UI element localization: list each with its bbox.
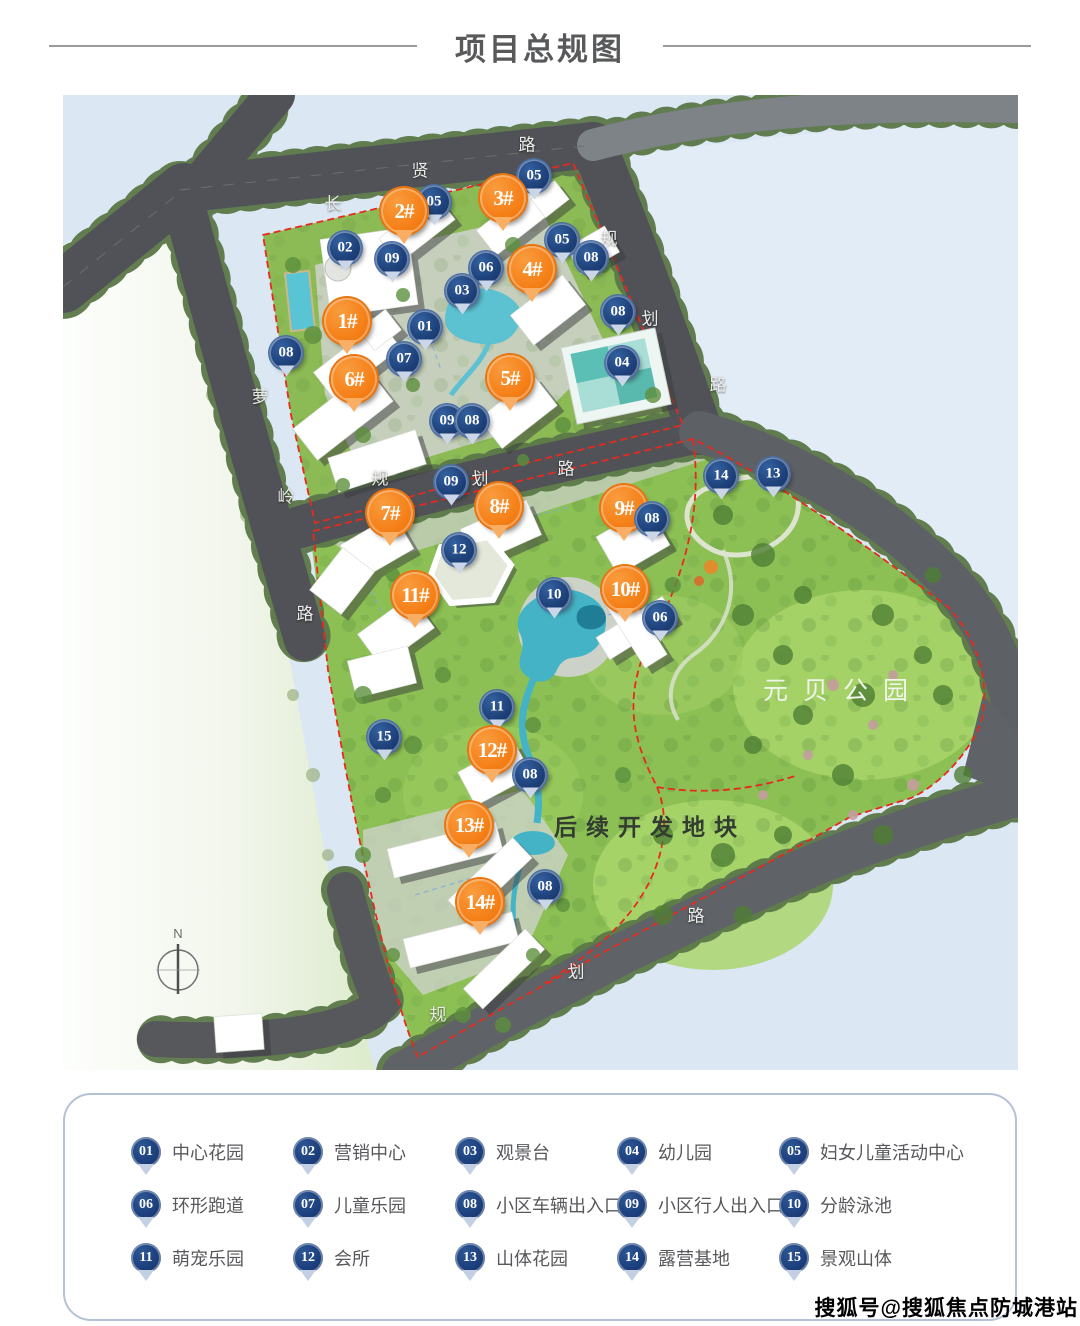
legend-item-04: 04幼儿园 bbox=[617, 1137, 779, 1167]
legend-item-12: 12会所 bbox=[293, 1243, 455, 1273]
legend-item-01: 01中心花园 bbox=[131, 1137, 293, 1167]
compass-n-label: N bbox=[173, 926, 182, 941]
legend-pin-10: 10 bbox=[779, 1190, 809, 1220]
site-plan-map: 1#2#3#4#5#6#7#8#9#10#11#12#13#14#0505020… bbox=[63, 95, 1018, 1070]
legend-item-02: 02营销中心 bbox=[293, 1137, 455, 1167]
title-bar: 项目总规图 bbox=[0, 18, 1080, 74]
building-pin-8#: 8# bbox=[476, 483, 522, 529]
amenity-pin-08: 08 bbox=[456, 405, 489, 438]
building-pin-13#: 13# bbox=[446, 802, 492, 848]
road-label-char: 规 bbox=[372, 465, 389, 490]
title-line-right bbox=[663, 45, 1031, 47]
legend-label: 小区行人出入口 bbox=[658, 1192, 784, 1218]
legend-item-14: 14露营基地 bbox=[617, 1243, 779, 1273]
road-label-char: 萝 bbox=[252, 383, 269, 408]
road-label-char: 路 bbox=[710, 371, 727, 396]
legend-label: 露营基地 bbox=[658, 1245, 730, 1271]
legend-item-06: 06环形跑道 bbox=[131, 1190, 293, 1220]
legend-pin-07: 07 bbox=[293, 1190, 323, 1220]
building-pin-3#: 3# bbox=[480, 175, 526, 221]
amenity-pin-08: 08 bbox=[270, 337, 303, 370]
building-pin-10#: 10# bbox=[602, 566, 648, 612]
legend-pin-09: 09 bbox=[617, 1190, 647, 1220]
legend-pin-14: 14 bbox=[617, 1243, 647, 1273]
legend-pin-13: 13 bbox=[455, 1243, 485, 1273]
legend-item-07: 07儿童乐园 bbox=[293, 1190, 455, 1220]
amenity-pin-09: 09 bbox=[376, 243, 409, 276]
building-pin-4#: 4# bbox=[509, 246, 555, 292]
road-label-char: 路 bbox=[558, 455, 575, 480]
road-label-char: 路 bbox=[688, 902, 705, 927]
road-label-char: 岭 bbox=[278, 483, 295, 508]
legend-pin-06: 06 bbox=[131, 1190, 161, 1220]
area-label: 元贝公园 bbox=[763, 671, 923, 707]
road-label-char: 贤 bbox=[412, 157, 429, 182]
building-pin-2#: 2# bbox=[381, 188, 427, 234]
amenity-pin-08: 08 bbox=[636, 503, 669, 536]
legend-label: 分龄泳池 bbox=[820, 1192, 892, 1218]
amenity-pin-13: 13 bbox=[757, 458, 790, 491]
building-pin-6#: 6# bbox=[331, 356, 377, 402]
amenity-pin-08: 08 bbox=[575, 242, 608, 275]
legend-item-03: 03观景台 bbox=[455, 1137, 617, 1167]
road-label-char: 划 bbox=[568, 958, 585, 983]
page: 项目总规图 bbox=[0, 0, 1080, 1326]
building-pin-12#: 12# bbox=[469, 727, 515, 773]
legend-label: 小区车辆出入口 bbox=[496, 1192, 622, 1218]
legend-label: 景观山体 bbox=[820, 1245, 892, 1271]
legend-grid: 01中心花园02营销中心03观景台04幼儿园05妇女儿童活动中心06环形跑道07… bbox=[65, 1095, 1015, 1284]
amenity-pin-05: 05 bbox=[546, 224, 579, 257]
legend-item-11: 11萌宠乐园 bbox=[131, 1243, 293, 1273]
legend-box: 01中心花园02营销中心03观景台04幼儿园05妇女儿童活动中心06环形跑道07… bbox=[63, 1093, 1017, 1321]
building-pin-7#: 7# bbox=[367, 490, 413, 536]
legend-label: 萌宠乐园 bbox=[172, 1245, 244, 1271]
amenity-pin-10: 10 bbox=[538, 579, 571, 612]
road-label-char: 路 bbox=[297, 600, 314, 625]
amenity-pin-03: 03 bbox=[446, 275, 479, 308]
legend-pin-01: 01 bbox=[131, 1137, 161, 1167]
legend-pin-11: 11 bbox=[131, 1243, 161, 1273]
page-title: 项目总规图 bbox=[455, 24, 625, 69]
legend-pin-08: 08 bbox=[455, 1190, 485, 1220]
building-pin-14#: 14# bbox=[457, 879, 503, 925]
legend-pin-05: 05 bbox=[779, 1137, 809, 1167]
legend-item-13: 13山体花园 bbox=[455, 1243, 617, 1273]
road-label-char: 路 bbox=[519, 131, 536, 156]
amenity-pin-07: 07 bbox=[388, 343, 421, 376]
amenity-pin-02: 02 bbox=[329, 232, 362, 265]
road-label-char: 长 bbox=[325, 190, 342, 215]
road-label-char: 划 bbox=[642, 305, 659, 330]
legend-pin-12: 12 bbox=[293, 1243, 323, 1273]
amenity-pin-06: 06 bbox=[644, 602, 677, 635]
title-line-left bbox=[49, 45, 417, 47]
legend-label: 山体花园 bbox=[496, 1245, 568, 1271]
amenity-pin-01: 01 bbox=[409, 311, 442, 344]
building-pin-11#: 11# bbox=[392, 572, 438, 618]
amenity-pin-08: 08 bbox=[514, 759, 547, 792]
legend-pin-15: 15 bbox=[779, 1243, 809, 1273]
legend-label: 环形跑道 bbox=[172, 1192, 244, 1218]
legend-item-15: 15景观山体 bbox=[779, 1243, 1015, 1273]
watermark: 搜狐号@搜狐焦点防城港站 bbox=[815, 1292, 1078, 1322]
amenity-pin-04: 04 bbox=[606, 347, 639, 380]
legend-item-09: 09小区行人出入口 bbox=[617, 1190, 779, 1220]
legend-label: 儿童乐园 bbox=[334, 1192, 406, 1218]
legend-label: 妇女儿童活动中心 bbox=[820, 1139, 964, 1165]
compass-north: N bbox=[148, 924, 208, 1000]
legend-label: 观景台 bbox=[496, 1139, 550, 1165]
legend-pin-04: 04 bbox=[617, 1137, 647, 1167]
amenity-pin-14: 14 bbox=[705, 460, 738, 493]
building-pin-1#: 1# bbox=[324, 298, 370, 344]
legend-label: 营销中心 bbox=[334, 1139, 406, 1165]
legend-item-08: 08小区车辆出入口 bbox=[455, 1190, 617, 1220]
amenity-pin-12: 12 bbox=[443, 534, 476, 567]
amenity-pin-15: 15 bbox=[368, 721, 401, 754]
amenity-pin-08: 08 bbox=[529, 871, 562, 904]
amenity-pin-11: 11 bbox=[481, 691, 514, 724]
legend-item-10: 10分龄泳池 bbox=[779, 1190, 1015, 1220]
building-pin-5#: 5# bbox=[487, 355, 533, 401]
amenity-pin-09: 09 bbox=[435, 466, 468, 499]
amenity-pin-08: 08 bbox=[602, 296, 635, 329]
legend-pin-02: 02 bbox=[293, 1137, 323, 1167]
legend-label: 中心花园 bbox=[172, 1139, 244, 1165]
legend-pin-03: 03 bbox=[455, 1137, 485, 1167]
legend-label: 幼儿园 bbox=[658, 1139, 712, 1165]
road-label-char: 规 bbox=[430, 1001, 447, 1026]
area-label: 后续开发地块 bbox=[554, 808, 746, 842]
legend-item-05: 05妇女儿童活动中心 bbox=[779, 1137, 1015, 1167]
legend-label: 会所 bbox=[334, 1245, 370, 1271]
